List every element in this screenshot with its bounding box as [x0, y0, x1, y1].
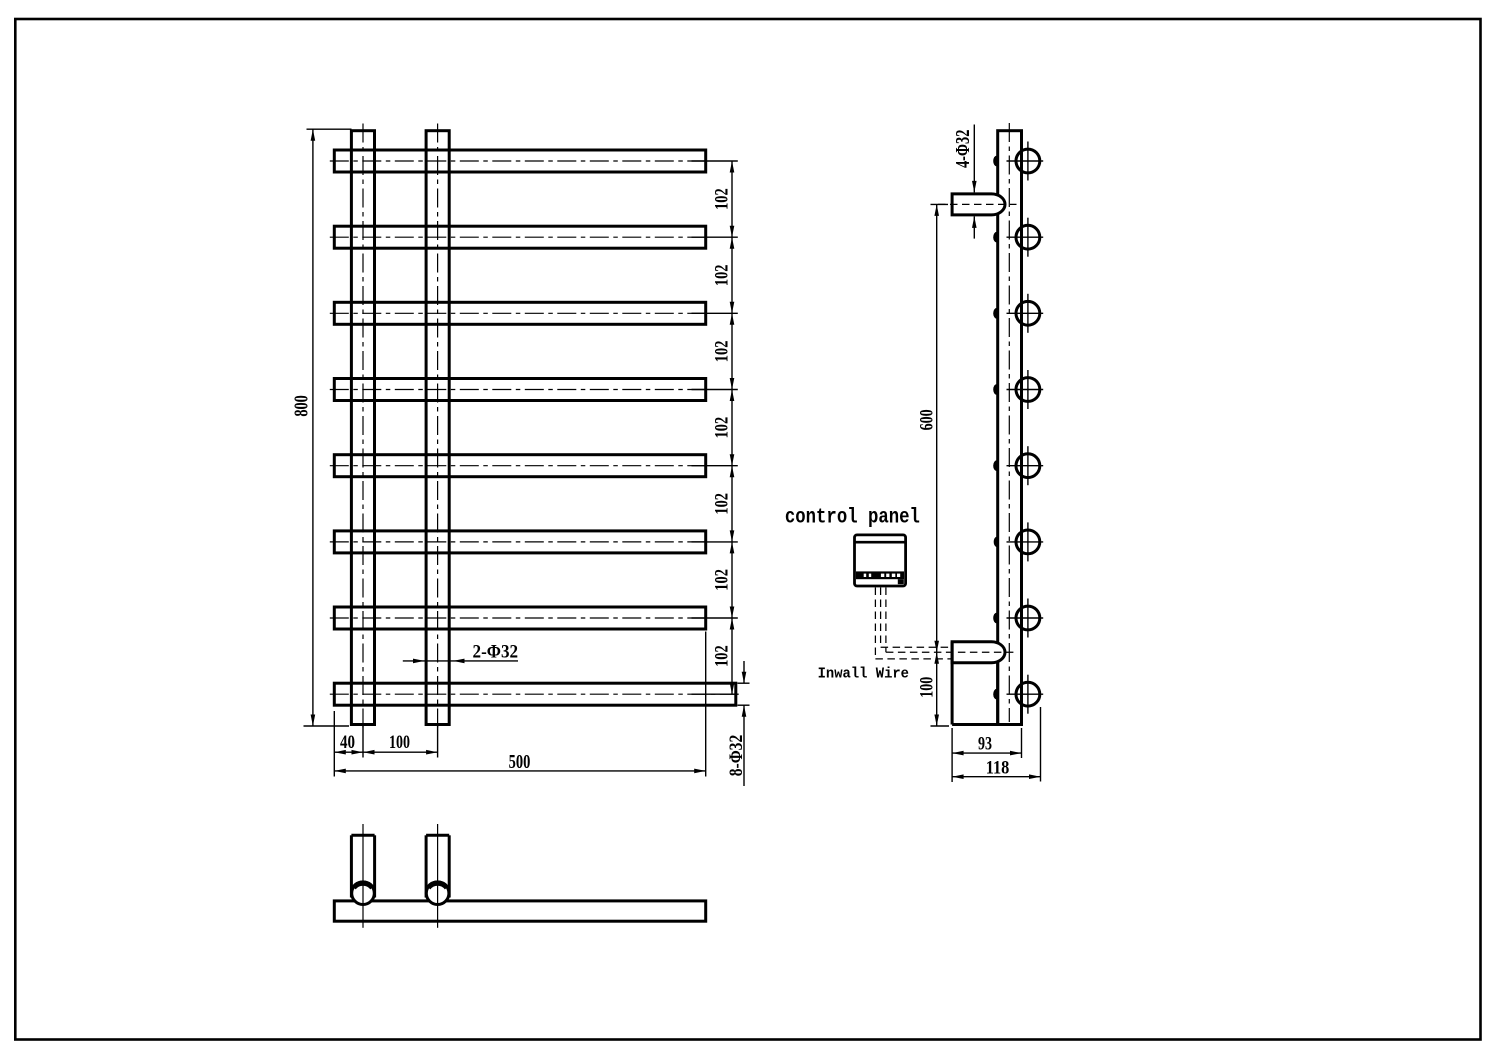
svg-text:102: 102: [711, 493, 732, 515]
svg-text:40: 40: [340, 732, 355, 753]
svg-text:102: 102: [711, 645, 732, 667]
svg-text:800: 800: [291, 395, 313, 417]
svg-text:2-Φ32: 2-Φ32: [473, 642, 519, 663]
svg-text:4-Φ32: 4-Φ32: [953, 130, 974, 169]
svg-text:100: 100: [389, 732, 410, 753]
svg-text:102: 102: [711, 188, 732, 210]
svg-text:102: 102: [711, 265, 732, 287]
svg-text:102: 102: [711, 341, 732, 363]
svg-text:100: 100: [916, 677, 937, 698]
svg-text:102: 102: [711, 569, 732, 591]
svg-text:102: 102: [711, 417, 732, 439]
svg-text:600: 600: [916, 409, 937, 430]
svg-text:Inwall Wire: Inwall Wire: [818, 667, 909, 683]
svg-text:500: 500: [509, 752, 531, 773]
svg-text:8-Φ32: 8-Φ32: [726, 735, 747, 777]
svg-text:control panel: control panel: [785, 507, 920, 530]
svg-text:118: 118: [986, 757, 1010, 778]
svg-text:93: 93: [978, 734, 992, 755]
